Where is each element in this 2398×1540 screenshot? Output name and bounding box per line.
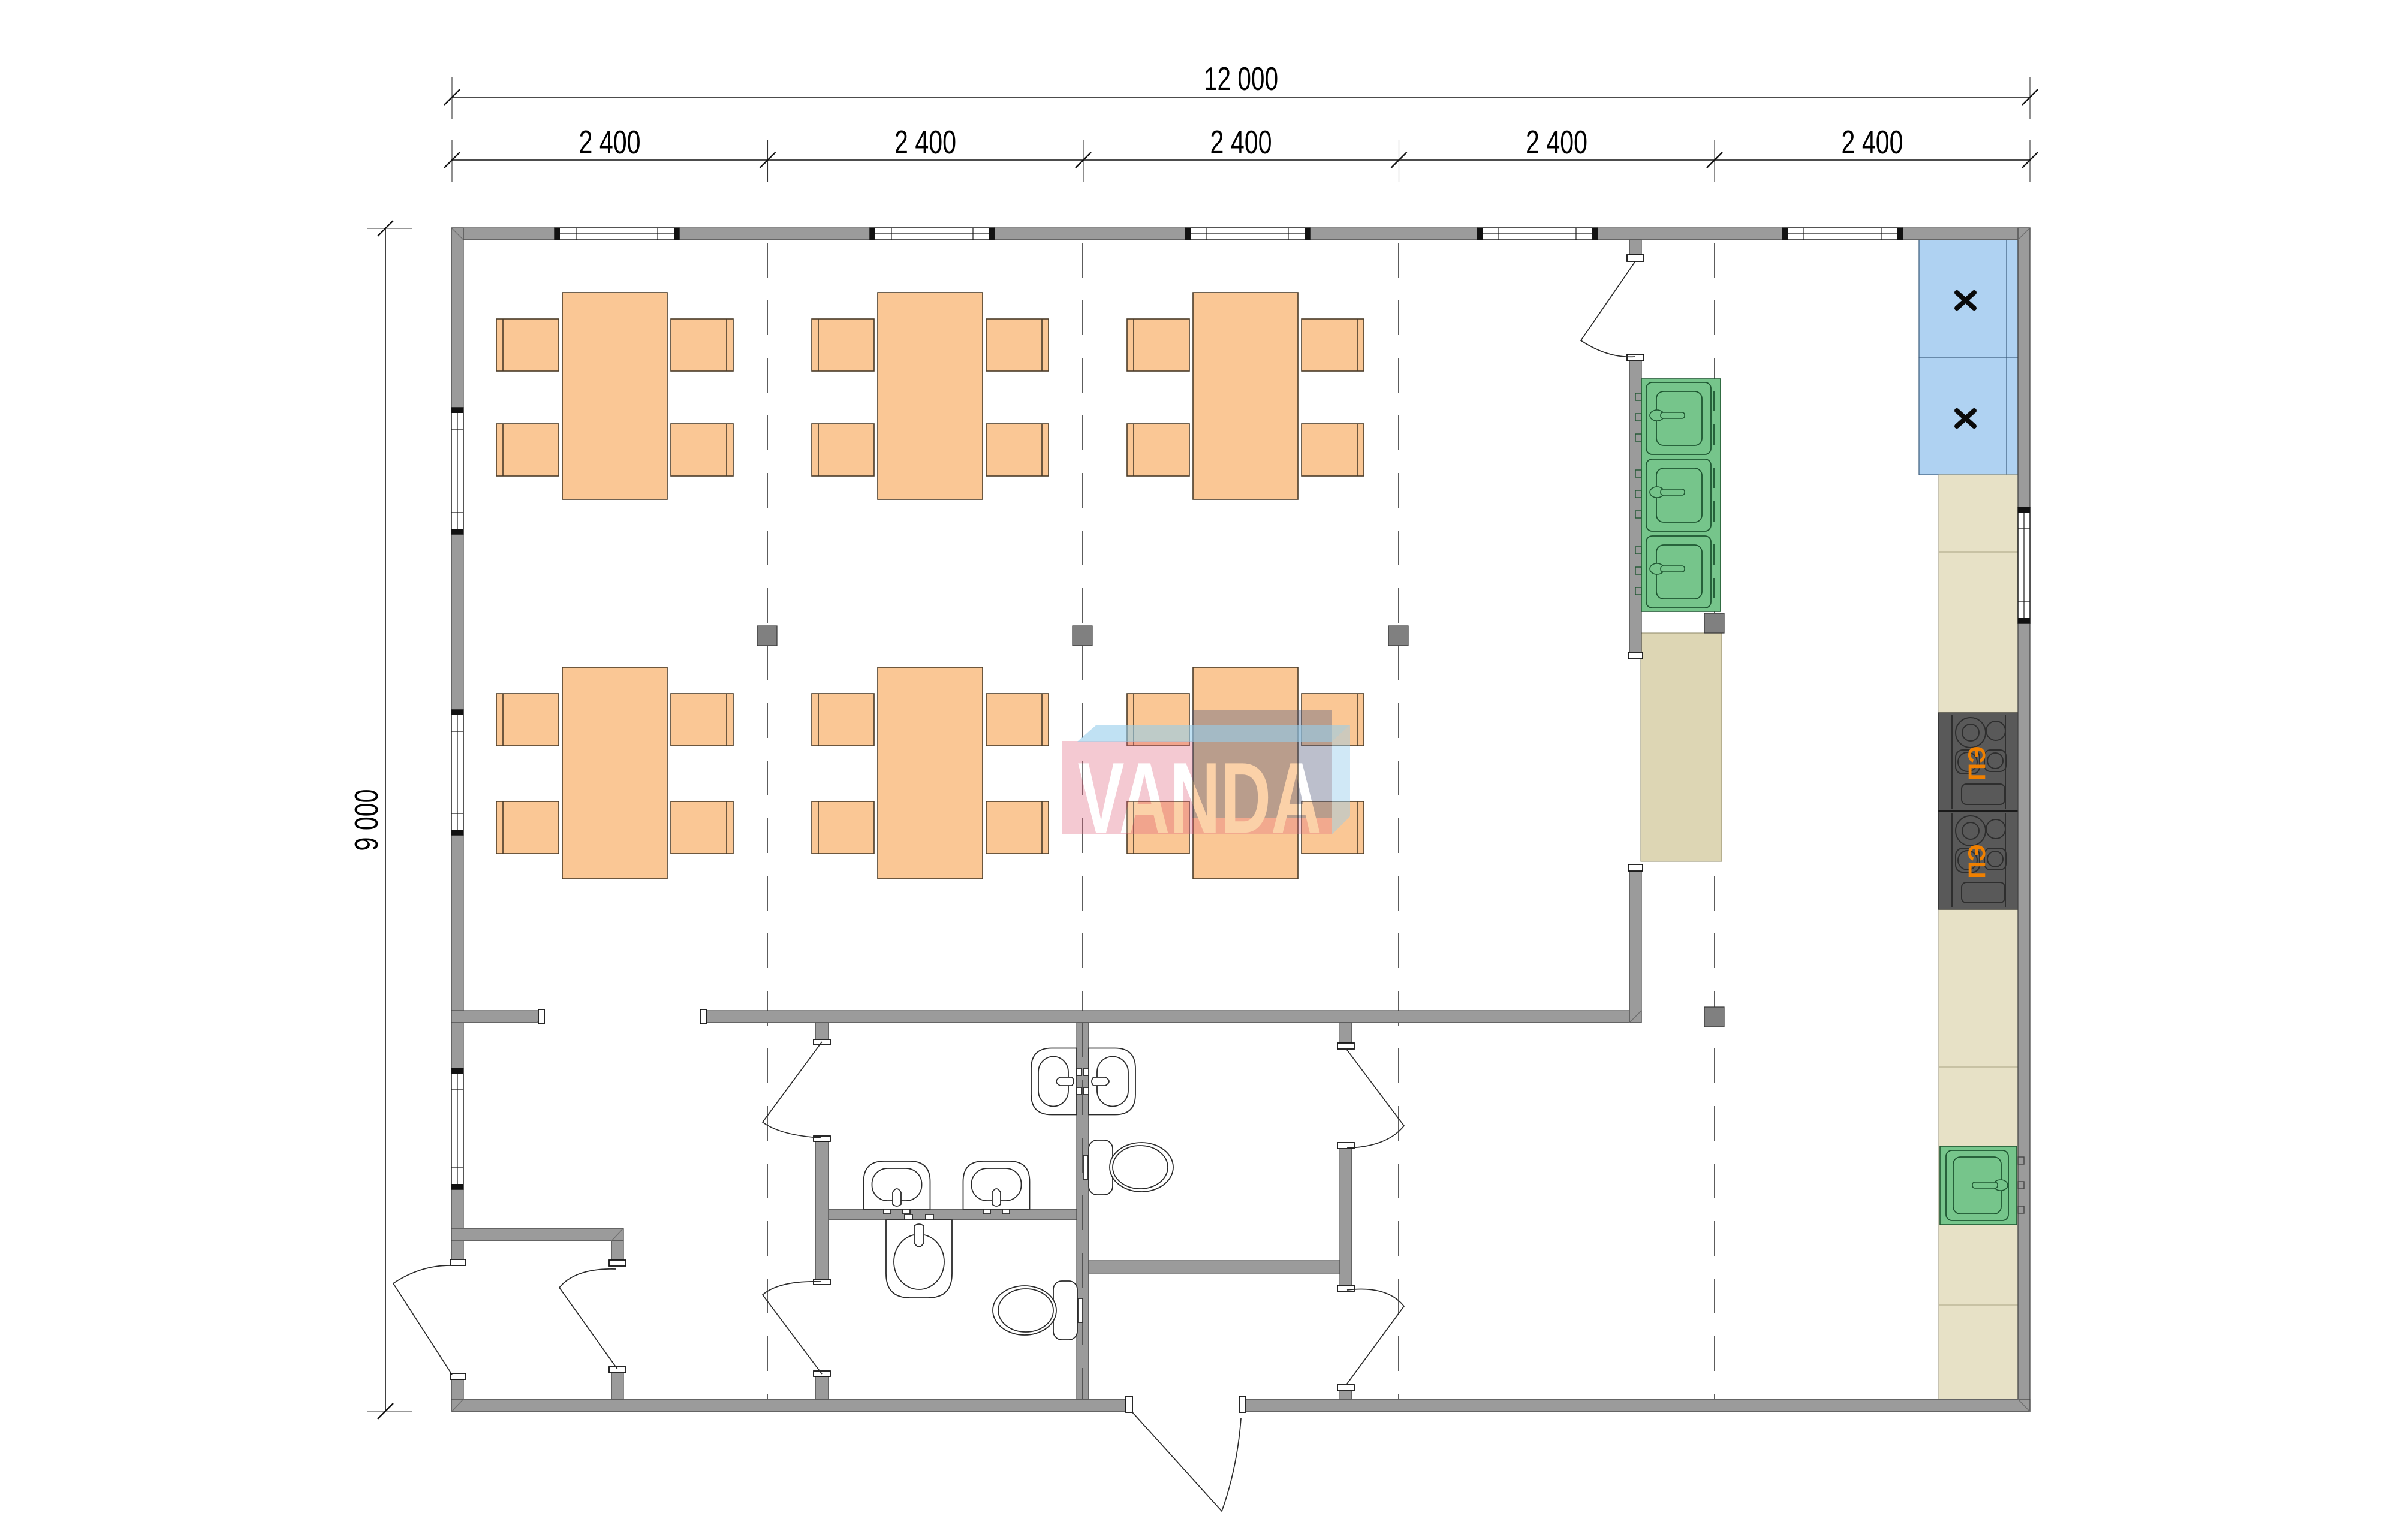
svg-text:2 400: 2 400 (1526, 123, 1587, 161)
svg-text:2 400: 2 400 (894, 123, 956, 161)
svg-text:2 400: 2 400 (1842, 123, 1903, 161)
svg-text:9 000: 9 000 (348, 789, 385, 851)
svg-text:12 000: 12 000 (1204, 60, 1278, 97)
svg-text:2 400: 2 400 (1210, 123, 1272, 161)
svg-text:ПЭ: ПЭ (1964, 746, 1990, 780)
svg-text:ПЭ: ПЭ (1964, 844, 1990, 878)
svg-text:2 400: 2 400 (579, 123, 641, 161)
svg-text:VANDA: VANDA (1078, 742, 1322, 854)
